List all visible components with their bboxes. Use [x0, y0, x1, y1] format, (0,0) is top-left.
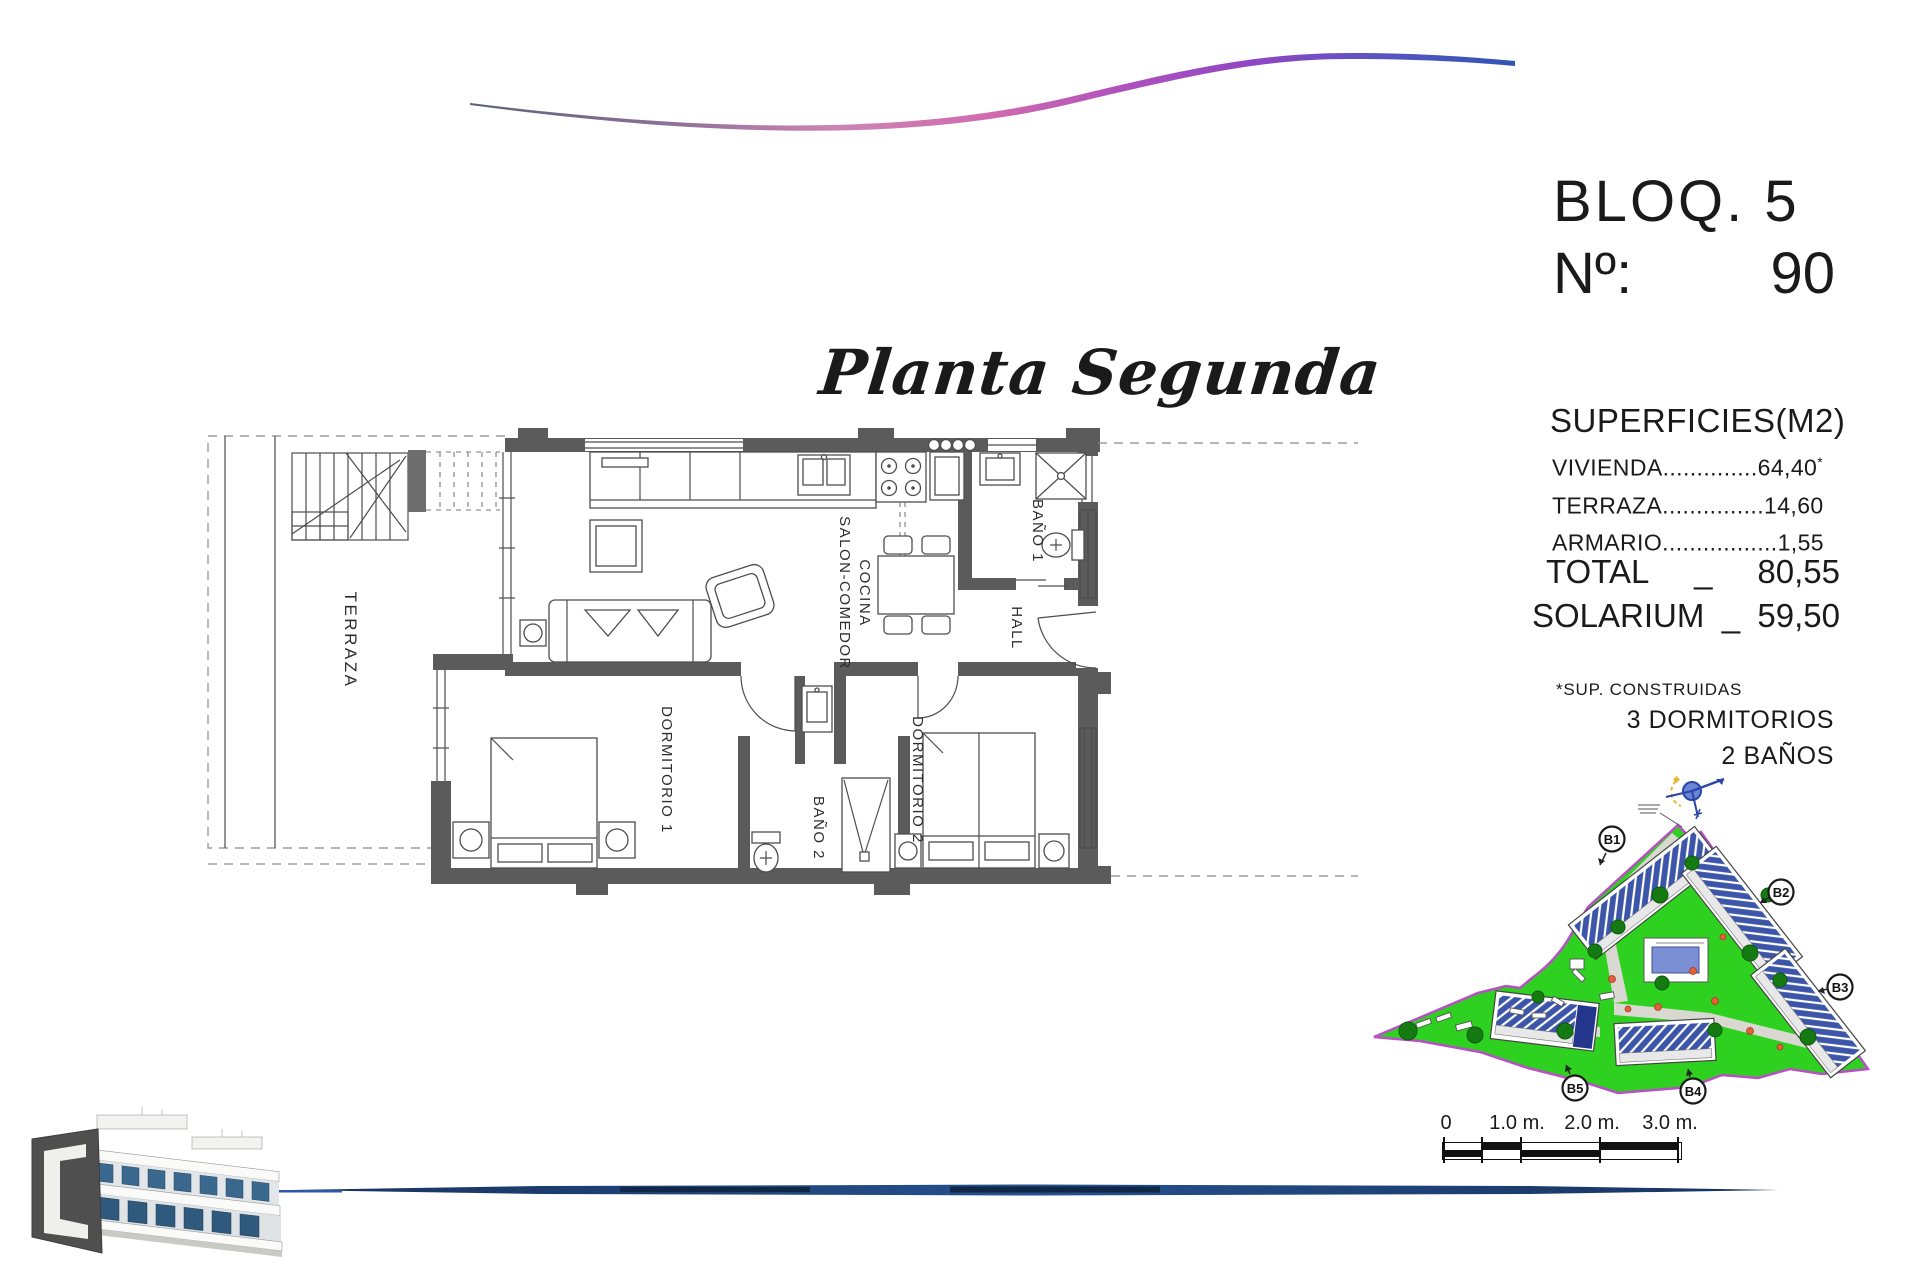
svg-text:B3: B3 — [1832, 980, 1849, 995]
unit-number-row: Nº: 90 — [1553, 240, 1835, 307]
superficies-row-vivienda: VIVIENDA..............64,40* — [1552, 446, 1824, 484]
living-room — [520, 520, 777, 662]
marker-b1: B1 — [1598, 827, 1625, 866]
site-plan: B1 B2 B3 B4 B5 — [1360, 775, 1890, 1110]
stair-landing-wall — [408, 450, 426, 512]
total-row: TOTAL _ 80,55 — [1532, 550, 1840, 594]
superficies-row-terraza: TERRAZA...............14,60 — [1552, 484, 1824, 522]
terraza-area: TERRAZA — [208, 436, 505, 864]
decorative-wave — [430, 25, 1550, 145]
plan-title: Planta Segunda — [816, 336, 1364, 409]
entrance-annotation — [1638, 805, 1682, 827]
pool — [1644, 938, 1708, 982]
dining-table — [878, 536, 954, 634]
scale-bar-graphic — [1442, 1142, 1682, 1160]
sink-icon — [798, 455, 850, 496]
scale-bar: 0 1.0 m. 2.0 m. 3.0 m. — [1440, 1112, 1690, 1176]
scale-3m: 3.0 m. — [1642, 1112, 1698, 1135]
terraza-label: TERRAZA — [341, 592, 360, 689]
svg-text:B5: B5 — [1567, 1081, 1584, 1096]
bedroom1 — [453, 738, 635, 868]
svg-text:B2: B2 — [1773, 885, 1790, 900]
bathrooms-note: 2 BAÑOS — [1548, 738, 1834, 774]
wave-ribbon — [470, 53, 1515, 131]
hall-label: HALL — [1008, 606, 1025, 650]
plan-sheet: { "header": { "bloq": "BLOQ. 5", "num_la… — [0, 0, 1920, 1280]
bano2-label: BAÑO 2 — [810, 796, 827, 860]
floor-plan: TERRAZA — [200, 428, 1360, 908]
scale-0: 0 — [1440, 1112, 1451, 1135]
neighbor-dashes — [1098, 443, 1358, 876]
solarium-row: SOLARIUM _ 59,50 — [1532, 594, 1840, 638]
scale-2m: 2.0 m. — [1564, 1112, 1620, 1135]
svg-text:B1: B1 — [1604, 832, 1621, 847]
salon-label-1: SALON-COMEDOR — [836, 516, 853, 670]
dorm2-label: DORMITORIO 2 — [909, 716, 926, 844]
stove-icon — [876, 452, 926, 502]
bedrooms-note: 3 DORMITORIOS — [1548, 702, 1834, 738]
bottom-accent-line — [290, 1180, 1780, 1200]
building-render — [22, 1085, 342, 1280]
dorm1-label: DORMITORIO 1 — [658, 706, 675, 834]
block-title: BLOQ. 5 — [1553, 168, 1800, 235]
footnote: *SUP. CONSTRUIDAS — [1556, 680, 1742, 700]
bano1-label: BAÑO 1 — [1029, 499, 1046, 563]
salon-label-2: COCINA — [856, 559, 873, 626]
program-notes: 3 DORMITORIOS 2 BAÑOS — [1548, 702, 1834, 774]
totals-block: TOTAL _ 80,55 SOLARIUM _ 59,50 — [1532, 550, 1840, 638]
scale-1m: 1.0 m. — [1489, 1112, 1545, 1135]
unit-number-label: Nº: — [1553, 240, 1632, 307]
unit-number-value: 90 — [1770, 240, 1835, 307]
compass-icon — [1666, 776, 1724, 819]
svg-text:B4: B4 — [1685, 1084, 1702, 1099]
building-b4 — [1614, 1018, 1716, 1065]
superficies-heading: SUPERFICIES(M2) — [1550, 402, 1845, 440]
glazed-walls — [433, 452, 515, 781]
superficies-rows: VIVIENDA..............64,40* TERRAZA....… — [1552, 446, 1824, 559]
